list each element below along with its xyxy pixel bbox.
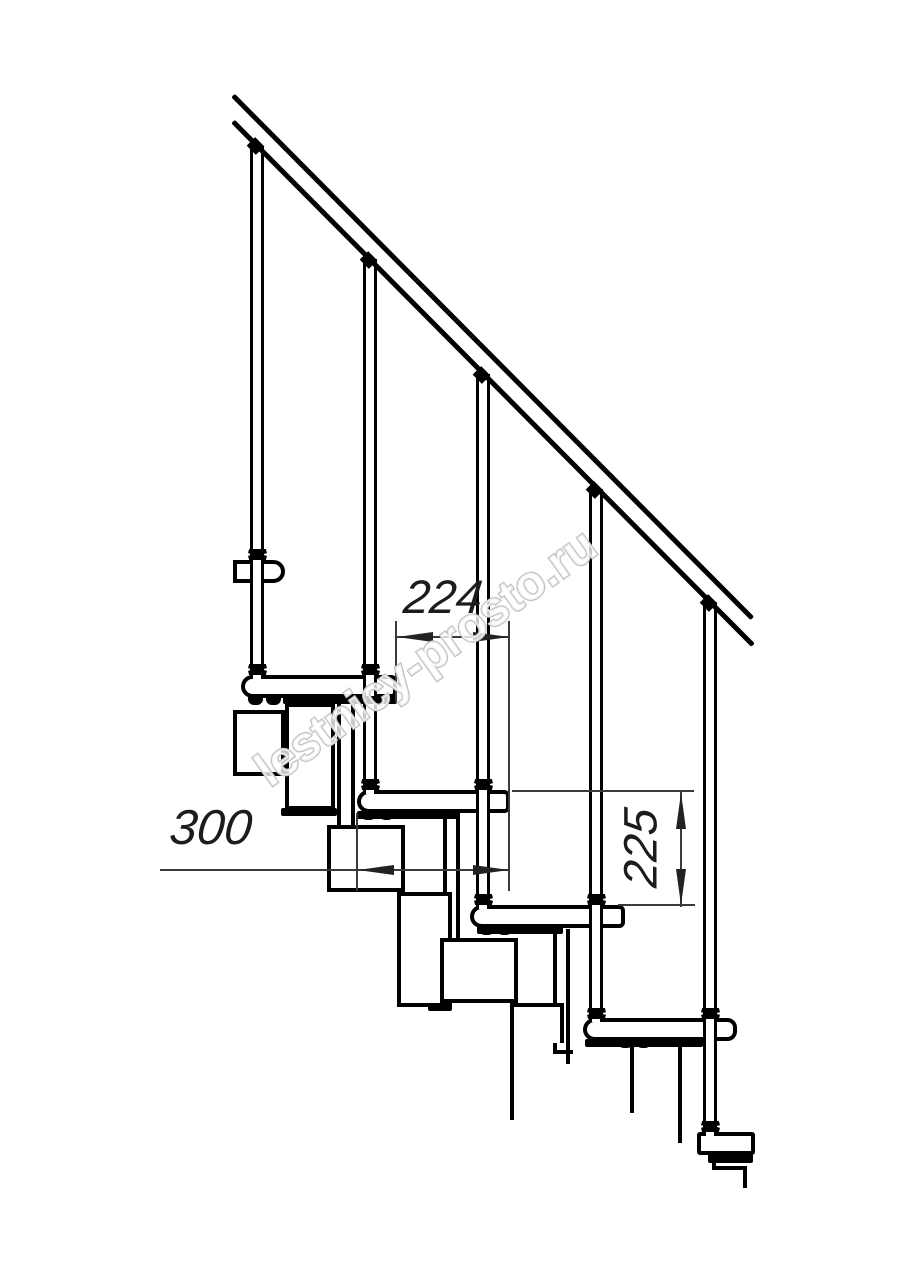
handrail-lower-line (231, 120, 755, 647)
module-box-1 (285, 703, 335, 810)
mount-strip-t1 (283, 696, 397, 704)
module-box-3-edge-line (510, 1043, 514, 1120)
dim-arrow-right-icon (473, 632, 509, 642)
dim-arrow-left-icon (358, 865, 394, 875)
module-square-1 (233, 710, 285, 776)
step-line-under-t5 (712, 1166, 747, 1170)
dim-arrow-up-icon (676, 793, 686, 829)
tread-foot (361, 811, 376, 820)
cut-line-under-t4 (630, 1047, 634, 1113)
dim-225-ext-top (512, 790, 694, 792)
dim-224-ext-right (508, 621, 510, 891)
module-square-3 (440, 938, 518, 1003)
cut-line-under-t4 (678, 1047, 682, 1143)
dim-arrow-down-icon (676, 869, 686, 905)
step-line-under-t5 (743, 1166, 747, 1188)
module-fragment-line (566, 1050, 570, 1064)
tread-foot (497, 926, 512, 935)
module-fragment-line (553, 1050, 573, 1054)
dim-arrow-left-icon (397, 632, 433, 642)
tread-foot (266, 696, 281, 705)
mount-strip-box1 (281, 808, 337, 816)
tread-foot (618, 1039, 633, 1048)
staircase-technical-drawing: 224 300 225 lestnicy-prosto.ru (0, 0, 914, 1280)
dim-224-label: 224 (402, 573, 485, 620)
mount-strip-t5 (708, 1154, 753, 1163)
dim-225-label: 225 (617, 782, 664, 913)
module-square-2 (327, 825, 405, 892)
baluster-1 (250, 146, 264, 679)
module-neck-1 (337, 699, 355, 826)
baluster-5 (703, 602, 717, 1136)
dim-300-line (160, 869, 509, 871)
baluster-2 (363, 259, 377, 794)
tread-foot (636, 1039, 651, 1048)
dim-300-label: 300 (167, 804, 254, 853)
handrail-upper-line (231, 94, 754, 620)
tread-foot (479, 926, 494, 935)
baluster-4 (589, 489, 603, 1022)
dim-arrow-right-icon (473, 865, 509, 875)
watermark-overlay: lestnicy-prosto.ru (0, 0, 914, 1280)
module-box-3-partial (510, 1003, 564, 1043)
tread-foot (248, 696, 263, 705)
dim-300-ext-left (356, 813, 358, 891)
tread-foot (379, 811, 394, 820)
mount-strip-box2 (428, 1003, 452, 1011)
